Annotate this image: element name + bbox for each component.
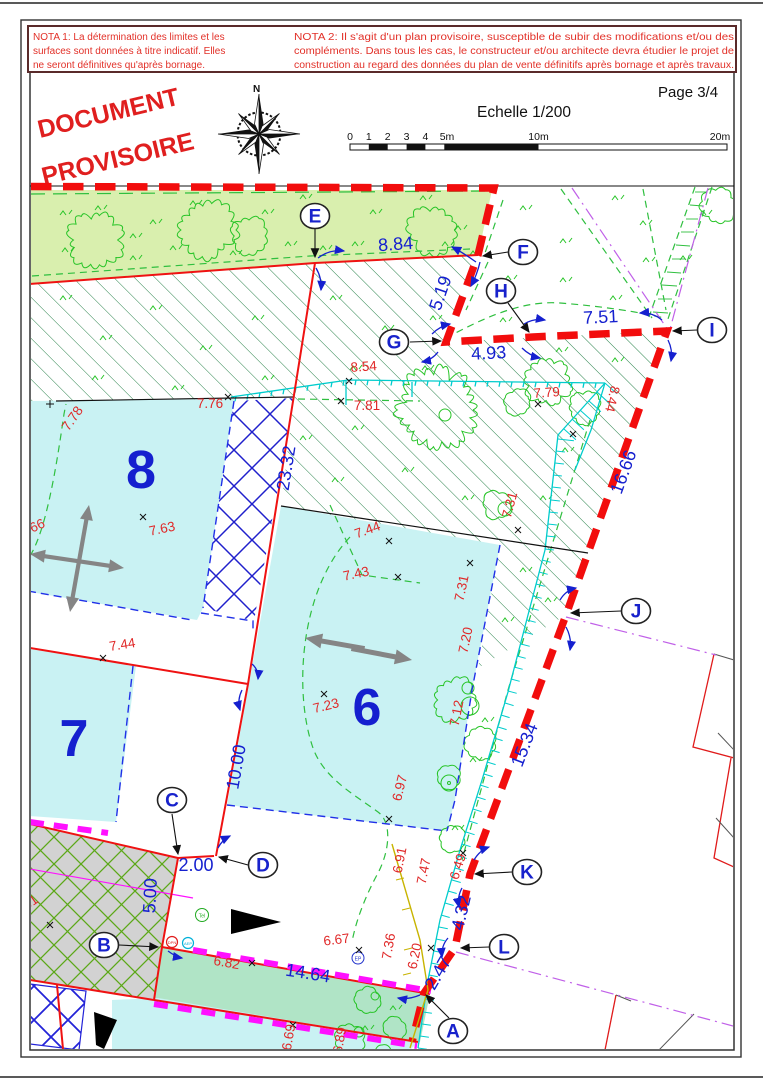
svg-text:0: 0 (347, 131, 353, 143)
svg-text:B: B (97, 936, 111, 957)
svg-text:7.79: 7.79 (533, 384, 560, 401)
svg-text:K: K (520, 863, 534, 884)
svg-text:10m: 10m (528, 131, 549, 143)
svg-text:7.76: 7.76 (197, 396, 223, 411)
svg-text:2.00: 2.00 (178, 855, 213, 875)
svg-text:Page 3/4: Page 3/4 (658, 84, 718, 101)
svg-text:8: 8 (126, 440, 156, 500)
svg-text:D: D (256, 856, 270, 877)
svg-text:N: N (253, 84, 260, 95)
svg-text:J: J (631, 602, 642, 623)
svg-text:C: C (165, 791, 179, 812)
svg-text:7.51: 7.51 (583, 306, 619, 328)
svg-text:7: 7 (60, 710, 89, 768)
svg-text:F: F (517, 243, 529, 264)
svg-text:Echelle 1/200: Echelle 1/200 (477, 104, 571, 121)
svg-text:ne seront définitives qu'aprè: ne seront définitives qu'après bornage. (33, 60, 205, 71)
svg-text:1: 1 (366, 131, 372, 143)
svg-text:3: 3 (404, 131, 410, 143)
svg-text:20m: 20m (710, 131, 731, 143)
svg-text:5.00: 5.00 (139, 878, 161, 914)
svg-text:A: A (446, 1022, 460, 1043)
svg-text:AEP: AEP (184, 941, 192, 946)
svg-text:compléments. Dans tous les cas: compléments. Dans tous les cas, le const… (294, 46, 734, 57)
svg-text:DPN: DPN (168, 940, 177, 945)
svg-text:surfaces sont données à titre: surfaces sont données à titre indicatif.… (33, 46, 225, 57)
svg-text:H: H (494, 282, 508, 303)
svg-text:L: L (498, 938, 510, 959)
svg-text:6: 6 (353, 679, 382, 737)
svg-text:I: I (709, 321, 714, 342)
svg-text:2: 2 (385, 131, 391, 143)
svg-text:4: 4 (422, 131, 428, 143)
svg-text:Tel: Tel (199, 914, 205, 920)
svg-text:8.84: 8.84 (377, 233, 413, 255)
svg-text:NOTA 1: La détermination des l: NOTA 1: La détermination des limites et … (33, 32, 225, 43)
svg-text:8.54: 8.54 (350, 358, 378, 375)
svg-text:4.93: 4.93 (471, 342, 507, 364)
svg-text:G: G (387, 333, 402, 354)
svg-text:E: E (309, 207, 322, 228)
svg-text:7.81: 7.81 (354, 398, 380, 413)
svg-text:5m: 5m (440, 131, 455, 143)
svg-text:NOTA 2: Il s'agit d'un plan pr: NOTA 2: Il s'agit d'un plan provisoire, … (294, 32, 734, 43)
svg-text:6.67: 6.67 (322, 930, 350, 948)
svg-text:EP: EP (355, 957, 362, 963)
svg-text:construction au regard des don: construction au regard des données du pl… (294, 60, 734, 71)
